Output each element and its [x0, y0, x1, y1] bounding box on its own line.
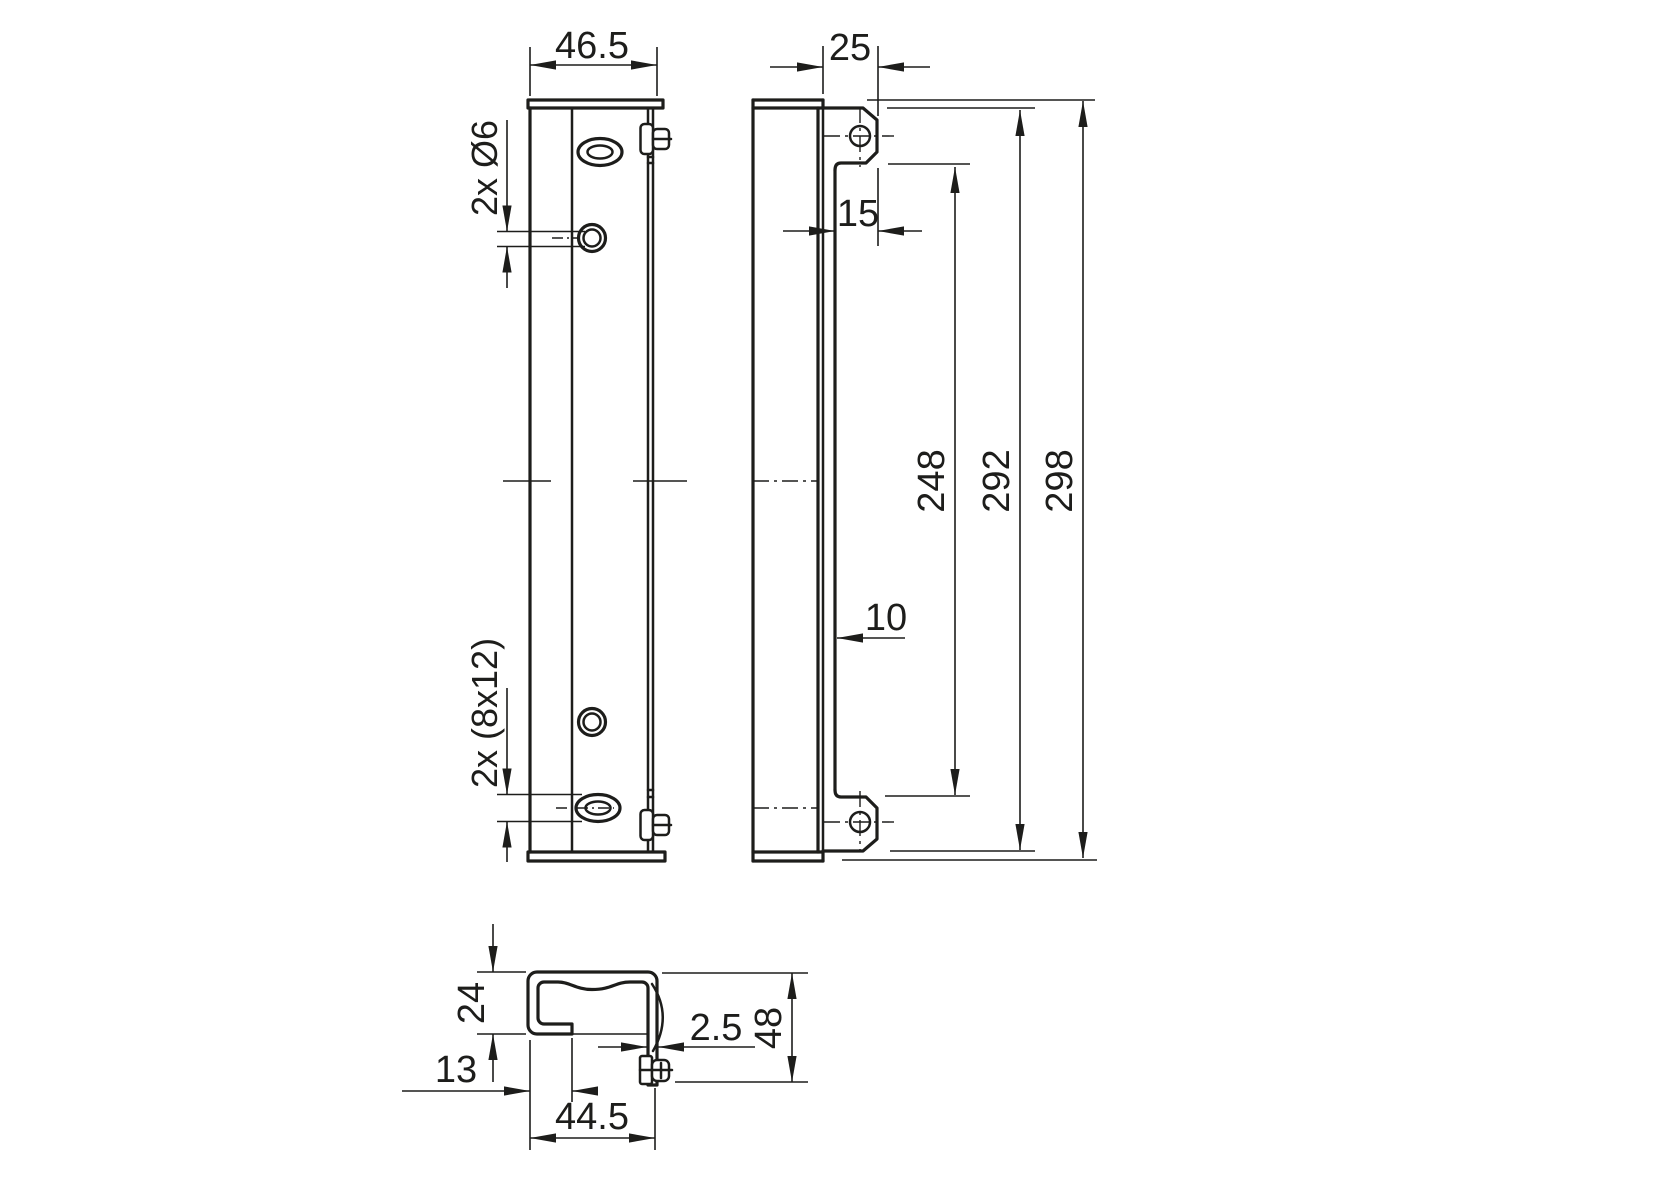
dim-24-text: 24 [451, 982, 493, 1024]
dim-bottom-slots: 2x (8x12) [464, 638, 582, 862]
side-view: 25 15 10 248 292 298 [753, 27, 1097, 861]
front-top-fastener [641, 124, 672, 163]
section-view: 24 13 44.5 2.5 48 [402, 924, 808, 1150]
section-fastener [640, 1056, 672, 1084]
dim-front-width: 46.5 [530, 25, 657, 96]
front-top-flange [528, 100, 663, 108]
front-bottom-hole [579, 709, 606, 736]
dim-length-292: 292 [976, 110, 1020, 850]
dim-298-text: 298 [1039, 449, 1081, 512]
section-profile [528, 972, 657, 1085]
front-bottom-slot [556, 795, 620, 822]
front-view: 46.5 2x Ø6 2x (8x12) [464, 25, 687, 862]
dim-44-5-text: 44.5 [555, 1096, 629, 1138]
technical-drawing: 46.5 2x Ø6 2x (8x12) [0, 0, 1680, 1188]
dim-thickness-2-5: 2.5 [598, 1007, 755, 1049]
top-holes-label: 2x Ø6 [464, 120, 505, 216]
dim-48-text: 48 [748, 1007, 790, 1049]
dim-width-44-5: 44.5 [530, 1088, 655, 1150]
dim-248-text: 248 [911, 449, 953, 512]
front-bottom-flange [528, 852, 665, 861]
front-top-slot [578, 139, 622, 166]
dim-tab-15: 15 [783, 168, 922, 246]
front-bottom-fastener [641, 790, 672, 840]
technical-drawing-page: 46.5 2x Ø6 2x (8x12) [0, 0, 1680, 1188]
dim-2-5-text: 2.5 [690, 1007, 743, 1049]
dim-top-holes: 2x Ø6 [464, 120, 585, 288]
dim-depth-25: 25 [770, 27, 930, 116]
dim-length-298: 298 [1039, 101, 1083, 858]
dim-web-10: 10 [837, 597, 907, 639]
dim-13-text: 13 [435, 1049, 477, 1091]
dim-front-width-text: 46.5 [555, 25, 629, 67]
bottom-slots-label: 2x (8x12) [464, 638, 505, 788]
dim-292-text: 292 [976, 449, 1018, 512]
dim-tab-text: 15 [837, 193, 879, 235]
dim-length-248: 248 [911, 167, 955, 795]
dim-depth-text: 25 [829, 27, 871, 69]
front-top-hole [552, 225, 606, 252]
dim-web-text: 10 [865, 597, 907, 639]
